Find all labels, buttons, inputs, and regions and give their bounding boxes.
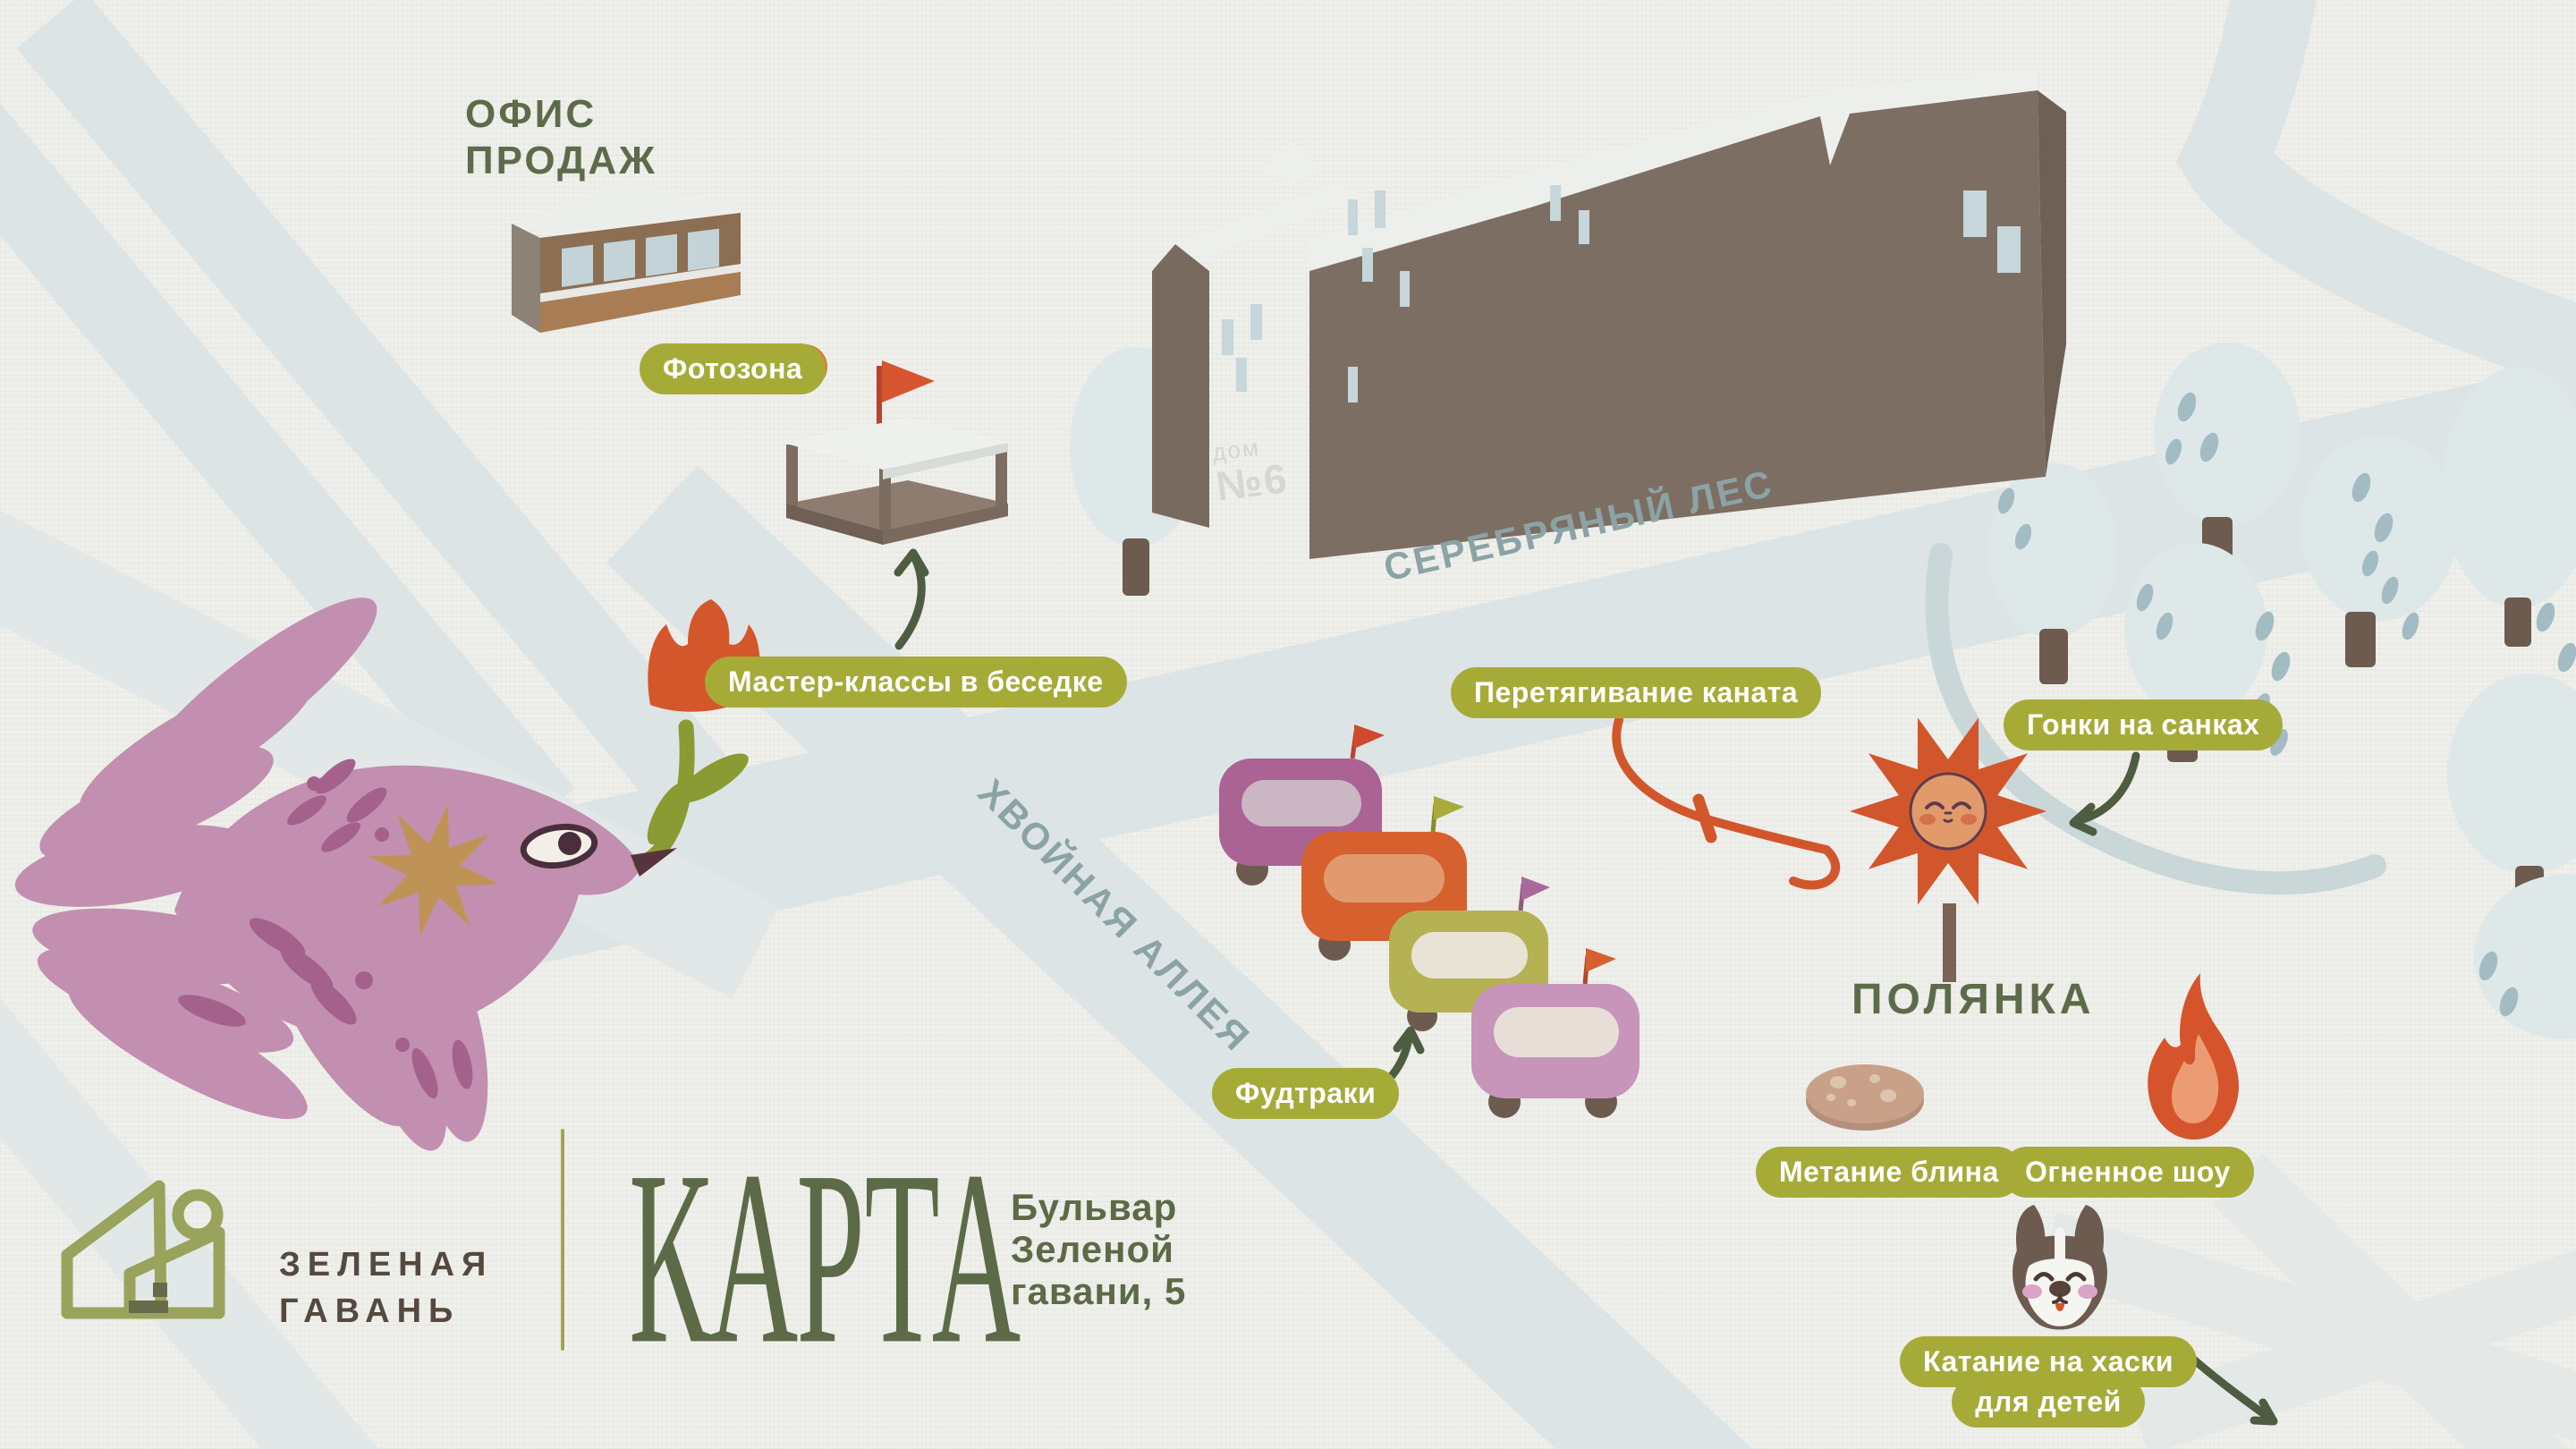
corner-road (2224, 0, 2576, 356)
brand-name: ЗЕЛЕНАЯГАВАНЬ (279, 1241, 493, 1335)
tree-icon (2301, 435, 2458, 667)
arrow-to-gazebo (898, 553, 925, 646)
rope-squiggle (1616, 720, 1835, 885)
pin-food-trucks: Фудтраки (1212, 1068, 1399, 1119)
pin-workshops: Мастер-классы в беседке (705, 657, 1127, 708)
pin-husky-rides-line2: для детей (1952, 1377, 2145, 1428)
flame-icon (2148, 973, 2239, 1140)
pin-husky-rides: Катание на хаски для детей (1905, 1336, 2191, 1428)
map-title: КАРТА (629, 1147, 1019, 1370)
building-number: дом №6 (1211, 432, 1291, 508)
red-flag-icon (882, 360, 935, 402)
pin-photo-zone: Фотозона (640, 343, 826, 394)
arrow-to-sled-trail (2073, 756, 2136, 832)
sales-office-title: ОФИСПРОДАЖ (465, 91, 657, 184)
event-map-poster: ОФИСПРОДАЖ СЕРЕБРЯНЫЙ ЛЕС ХВОЙНАЯ АЛЛЕЯ … (0, 0, 2576, 1449)
footer-divider (561, 1129, 564, 1351)
sales-office-building (512, 181, 741, 333)
sun-flower-icon (1850, 717, 2046, 982)
pin-tug-of-war: Перетягивание каната (1451, 667, 1821, 718)
pin-fire-show: Огненное шоу (2002, 1147, 2254, 1198)
pin-sled-races: Гонки на санках (2004, 699, 2283, 750)
address: БульварЗеленойгавани, 5 (1011, 1186, 1186, 1312)
tree-icon (2442, 367, 2576, 647)
area-glade: ПОЛЯНКА (1851, 975, 2095, 1026)
pin-pancake-throw: Метание блина (1756, 1147, 2022, 1198)
pancake-icon (1806, 1064, 1924, 1131)
